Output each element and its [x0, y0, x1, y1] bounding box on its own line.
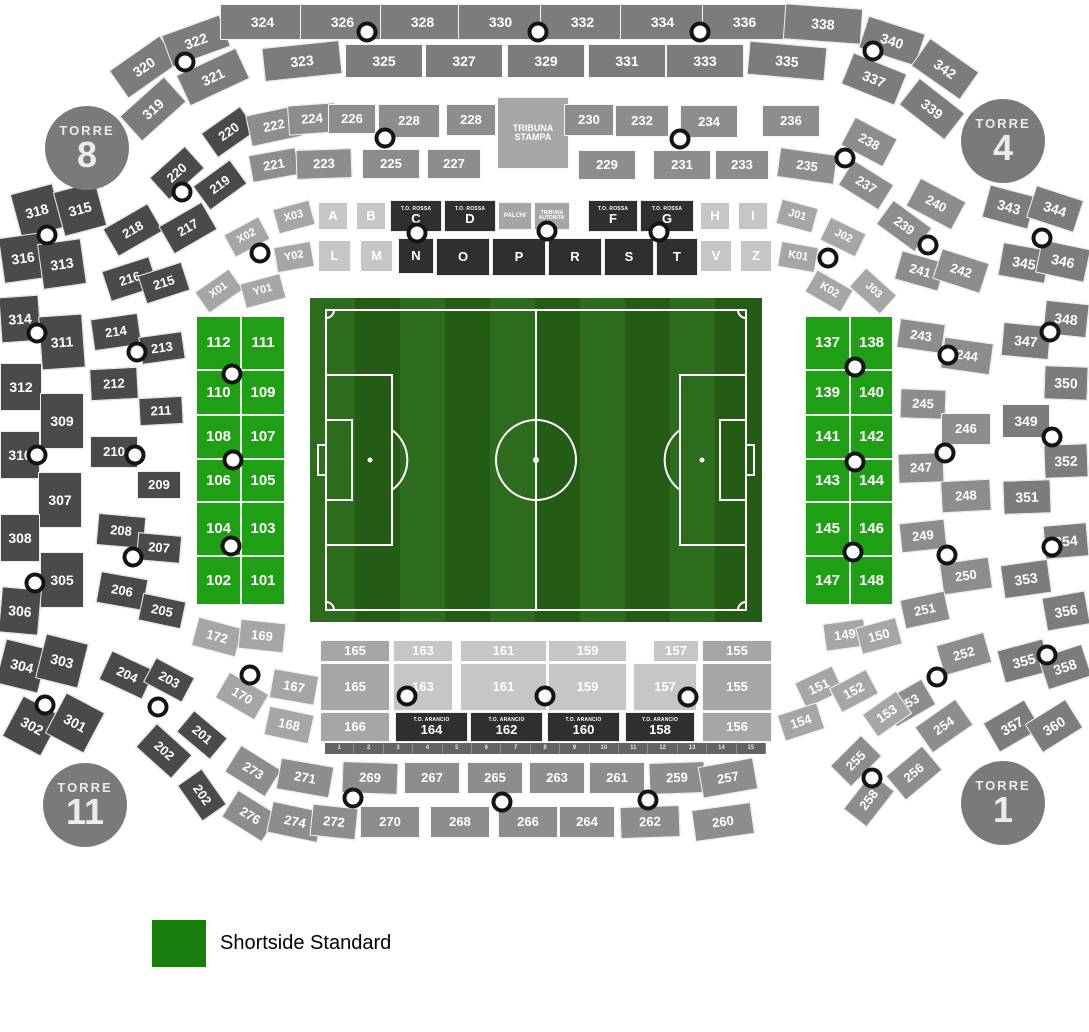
- section-335: 335: [747, 41, 828, 82]
- gate-marker: [845, 452, 866, 473]
- gate-marker: [845, 357, 866, 378]
- section-260: 260: [691, 802, 755, 842]
- section-label: 264: [575, 815, 599, 829]
- section-325: 325: [345, 44, 423, 78]
- row-number: 7: [501, 743, 530, 754]
- section-label: 259: [665, 771, 689, 785]
- section-label: 313: [48, 255, 75, 273]
- section-label: 159: [576, 644, 600, 658]
- section-143[interactable]: 143: [805, 459, 850, 502]
- section-165: 165: [320, 640, 390, 662]
- section-label: 209: [147, 478, 171, 492]
- row-number: 13: [678, 743, 707, 754]
- section-248: 248: [940, 479, 992, 514]
- section-154: 154: [777, 702, 826, 742]
- gate-marker: [927, 667, 948, 688]
- section-label: 144: [858, 473, 885, 489]
- section-102[interactable]: 102: [196, 556, 241, 605]
- section-label: 250: [953, 568, 978, 585]
- section-label: 227: [442, 157, 466, 171]
- section-328: 328: [380, 4, 465, 40]
- section-label: 155: [725, 680, 749, 694]
- section-label: TRIBUNA STAMPA: [498, 124, 568, 143]
- section-273: 273: [224, 745, 282, 798]
- section-b: B: [356, 202, 386, 230]
- section-label: 104: [205, 521, 232, 537]
- section-label: 219: [206, 173, 233, 198]
- section-label: 203: [155, 668, 182, 691]
- section-272: 272: [309, 804, 358, 841]
- section-351: 351: [1002, 479, 1051, 515]
- section-323: 323: [261, 40, 342, 82]
- section-211: 211: [138, 396, 183, 426]
- section-label: 342: [930, 56, 959, 83]
- section-label: L: [330, 249, 340, 263]
- section-159: 159: [548, 640, 627, 662]
- section-label: 343: [995, 197, 1023, 218]
- section-label: 145: [814, 521, 841, 537]
- section-label: H: [709, 209, 720, 223]
- section-233: 233: [715, 150, 769, 180]
- gate-marker: [670, 129, 691, 150]
- section-label: J01: [786, 208, 809, 224]
- gate-marker: [863, 41, 884, 62]
- section-label: 152: [840, 679, 867, 702]
- section-label: J03: [862, 280, 885, 302]
- section-label: 221: [261, 156, 287, 174]
- section-label: R: [569, 250, 580, 264]
- section-label: 156: [725, 720, 749, 734]
- gate-marker: [375, 128, 396, 149]
- section-label: 333: [692, 54, 717, 69]
- section-label: 150: [866, 626, 892, 645]
- section-label: 225: [379, 157, 403, 171]
- section-a: A: [318, 202, 348, 230]
- section-label: 276: [236, 804, 263, 828]
- section-160: T.O. ARANCIO160: [547, 712, 620, 742]
- section-label: 271: [292, 769, 318, 787]
- section-label: 148: [858, 573, 885, 589]
- section-226: 226: [328, 104, 376, 134]
- section-label: 226: [340, 112, 364, 126]
- section-label: 208: [109, 523, 134, 539]
- section-label: 158: [648, 723, 672, 737]
- section-label: 160: [572, 723, 596, 737]
- section-246: 246: [941, 413, 991, 445]
- section-label: 220: [215, 120, 242, 145]
- section-z: Z: [740, 240, 772, 272]
- section-label: X01: [207, 280, 231, 302]
- section-label: 167: [281, 678, 307, 696]
- section-label: 331: [614, 54, 639, 69]
- section-label: P: [514, 250, 525, 264]
- section-label: 109: [249, 385, 276, 401]
- section-308: 308: [0, 514, 40, 562]
- row-number: 3: [384, 743, 413, 754]
- section-label: 218: [119, 218, 146, 242]
- section-j01: J01: [775, 199, 818, 234]
- section-332: 332: [540, 4, 625, 40]
- section-label: T: [672, 250, 682, 264]
- torre-4: TORRE4: [961, 99, 1045, 183]
- section-264: 264: [559, 806, 615, 838]
- section-label: 247: [909, 461, 933, 475]
- section-x03: X03: [272, 200, 315, 235]
- row-number: 4: [413, 743, 442, 754]
- section-label: 338: [810, 16, 836, 32]
- gate-marker: [25, 573, 46, 594]
- section-label: 224: [300, 111, 325, 126]
- section-163: 163: [393, 640, 453, 662]
- section-165: 165: [320, 663, 390, 711]
- gate-marker: [638, 790, 659, 811]
- section-label: 334: [650, 15, 675, 30]
- section-107[interactable]: 107: [241, 415, 285, 459]
- torre-1: TORRE1: [961, 761, 1045, 845]
- section-309: 309: [40, 393, 84, 449]
- section-label: 143: [814, 473, 841, 489]
- section-k02: K02: [804, 269, 853, 313]
- section-label: Z: [751, 249, 761, 263]
- section-label: 245: [911, 397, 935, 411]
- section-label: A: [327, 209, 338, 223]
- section-label: 356: [1052, 602, 1080, 621]
- section-label: 328: [410, 15, 435, 30]
- section-261: 261: [589, 762, 645, 794]
- section-263: 263: [529, 762, 585, 794]
- section-r: R: [548, 238, 602, 276]
- section-360: 360: [1025, 699, 1084, 753]
- section-268: 268: [430, 806, 490, 838]
- section-label: 316: [9, 249, 36, 267]
- section-label: 260: [710, 814, 735, 831]
- section-h: H: [700, 202, 730, 230]
- section-label: 215: [151, 273, 178, 293]
- section-p: P: [492, 238, 546, 276]
- row-number: 15: [737, 743, 766, 754]
- section-157: 157: [653, 640, 699, 662]
- section-label: 302: [17, 714, 46, 739]
- section-label: 146: [858, 521, 885, 537]
- section-label: I: [750, 209, 756, 223]
- section-164: T.O. ARANCIO164: [395, 712, 468, 742]
- section-229: 229: [578, 150, 636, 180]
- section-label: 269: [358, 771, 382, 785]
- section-331: 331: [588, 44, 666, 78]
- section-label: X03: [282, 209, 306, 226]
- section-205: 205: [138, 593, 187, 630]
- section-label: 240: [922, 192, 949, 215]
- section-159: 159: [548, 663, 627, 711]
- section-label: 205: [149, 602, 175, 620]
- section-label: 267: [420, 771, 444, 785]
- section-label: 139: [814, 385, 841, 401]
- gate-marker: [862, 768, 883, 789]
- gate-marker: [397, 686, 418, 707]
- section-230: 230: [564, 104, 614, 136]
- section-label: 346: [1049, 251, 1077, 271]
- gate-marker: [223, 450, 244, 471]
- section-label: 107: [249, 429, 276, 445]
- section-label: 337: [859, 67, 888, 90]
- section-329: 329: [507, 44, 585, 78]
- gate-marker: [678, 687, 699, 708]
- section-label: 324: [250, 15, 275, 30]
- torre-number: 8: [77, 138, 97, 172]
- section-105[interactable]: 105: [241, 459, 285, 502]
- gate-marker: [27, 323, 48, 344]
- section-label: 157: [653, 680, 677, 694]
- stadium-map: 123456789101112131415 Shortside Standard…: [0, 0, 1089, 1032]
- section-label: 344: [1041, 198, 1070, 220]
- section-label: 165: [343, 644, 367, 658]
- section-label: 228: [397, 114, 421, 128]
- section-352: 352: [1043, 443, 1088, 479]
- section-label: 214: [103, 324, 128, 341]
- section-225: 225: [362, 149, 420, 179]
- section-label: 266: [516, 815, 540, 829]
- section-label: 102: [205, 573, 232, 589]
- section-label: 155: [725, 644, 749, 658]
- section-101[interactable]: 101: [241, 556, 285, 605]
- legend: Shortside Standard: [152, 920, 391, 967]
- section-236: 236: [762, 105, 820, 137]
- gate-marker: [843, 542, 864, 563]
- section-label: 273: [239, 759, 266, 783]
- section-label: 108: [205, 429, 232, 445]
- section-label: 335: [774, 53, 801, 70]
- section-353: 353: [1000, 559, 1052, 599]
- section-label: 210: [102, 445, 126, 459]
- section-label: 151: [805, 676, 832, 698]
- section-202: 202: [177, 768, 227, 821]
- section-label: 303: [48, 651, 76, 671]
- section-155: 155: [702, 663, 772, 711]
- section-v: V: [700, 240, 732, 272]
- section-label: 270: [378, 815, 402, 829]
- section-label: 263: [545, 771, 569, 785]
- section-167: 167: [269, 668, 320, 706]
- torre-number: 4: [993, 131, 1013, 165]
- section-306: 306: [0, 586, 42, 635]
- section-311: 311: [38, 314, 86, 371]
- section-k01: K01: [777, 241, 819, 273]
- section-label: 234: [697, 115, 721, 129]
- section-111[interactable]: 111: [241, 316, 285, 370]
- section-label: 237: [852, 173, 879, 197]
- section-label: 212: [102, 377, 126, 392]
- section-label: 320: [129, 54, 158, 81]
- section-label: 329: [533, 54, 558, 69]
- section-label: F: [608, 212, 618, 226]
- section-156: 156: [702, 712, 772, 742]
- section-label: 206: [109, 582, 135, 600]
- section-169: 169: [238, 619, 287, 654]
- section-label: 351: [1014, 489, 1040, 505]
- section-label: 172: [204, 627, 230, 646]
- section-172: 172: [191, 617, 243, 658]
- section-139[interactable]: 139: [805, 370, 850, 415]
- section-label: 272: [321, 814, 346, 830]
- section-label: 239: [890, 214, 917, 239]
- row-number: 5: [443, 743, 472, 754]
- section-label: 262: [638, 815, 662, 829]
- gate-marker: [818, 248, 839, 269]
- gate-marker: [528, 22, 549, 43]
- gate-marker: [935, 443, 956, 464]
- section-label: 159: [576, 680, 600, 694]
- gate-marker: [250, 243, 271, 264]
- gate-marker: [27, 445, 48, 466]
- section-label: 248: [954, 489, 978, 504]
- section-label: 257: [715, 769, 741, 787]
- section-label: 268: [448, 815, 472, 829]
- gate-marker: [172, 182, 193, 203]
- gate-marker: [222, 364, 243, 385]
- section-label: N: [410, 249, 421, 263]
- section-label: Y02: [282, 249, 305, 264]
- section-label: 309: [49, 414, 74, 429]
- section-palchi: PALCHI: [498, 202, 532, 230]
- section-141[interactable]: 141: [805, 415, 850, 459]
- section-227: 227: [427, 149, 481, 179]
- section-242: 242: [932, 248, 989, 294]
- torre-number: 11: [66, 795, 104, 829]
- section-label: 161: [492, 680, 516, 694]
- section-label: 111: [250, 335, 275, 351]
- section-232: 232: [615, 105, 669, 137]
- gate-marker: [537, 221, 558, 242]
- section-147[interactable]: 147: [805, 556, 850, 605]
- section-label: 166: [343, 720, 367, 734]
- section-324: 324: [220, 4, 305, 40]
- section-212: 212: [89, 367, 139, 401]
- section-label: 336: [732, 15, 757, 30]
- row-number: 9: [560, 743, 589, 754]
- section-203: 203: [143, 657, 195, 702]
- section-label: 304: [8, 656, 36, 676]
- section-label: 170: [228, 684, 255, 708]
- section-333: 333: [666, 44, 744, 78]
- gate-marker: [1037, 645, 1058, 666]
- section-209: 209: [137, 471, 181, 499]
- section-label: 207: [147, 540, 172, 556]
- pitch-graphic: [310, 298, 762, 622]
- section-109[interactable]: 109: [241, 370, 285, 415]
- gate-marker: [343, 788, 364, 809]
- section-label: 357: [997, 713, 1026, 738]
- torre-8: TORRE8: [45, 106, 129, 190]
- section-label: TRIBUNA AUTORITA': [535, 211, 569, 222]
- section-label: 306: [7, 603, 34, 620]
- section-m: M: [360, 240, 393, 272]
- section-label: 311: [49, 334, 75, 350]
- row-number: 10: [590, 743, 619, 754]
- section-251: 251: [899, 591, 950, 630]
- section-label: 169: [249, 628, 274, 644]
- section-label: 350: [1053, 375, 1079, 391]
- gate-marker: [148, 697, 169, 718]
- section-168: 168: [263, 706, 314, 745]
- legend-swatch-shortside-standard: [152, 920, 206, 967]
- section-label: 301: [60, 711, 89, 736]
- section-label: 332: [570, 15, 595, 30]
- torre-number: 1: [993, 793, 1013, 827]
- section-label: 138: [858, 335, 885, 351]
- section-label: 243: [908, 328, 933, 345]
- section-245: 245: [899, 388, 946, 420]
- row-number: 11: [619, 743, 648, 754]
- gate-marker: [1042, 537, 1063, 558]
- section-label: 230: [577, 113, 601, 127]
- section-label: 213: [149, 340, 174, 357]
- gate-marker: [1040, 322, 1061, 343]
- section-label: 137: [814, 335, 841, 351]
- section-label: J02: [831, 227, 854, 246]
- section-label: 251: [912, 601, 938, 619]
- section-label: 321: [198, 65, 227, 89]
- section-label: 326: [330, 15, 355, 30]
- section-label: 202: [151, 738, 178, 764]
- row-number: 14: [707, 743, 736, 754]
- gate-marker: [918, 235, 939, 256]
- section-label: 308: [7, 531, 32, 546]
- section-label: O: [457, 250, 469, 264]
- section-label: 110: [205, 385, 231, 401]
- section-label: 231: [670, 158, 694, 172]
- section-label: 153: [873, 702, 900, 727]
- gate-marker: [127, 342, 148, 363]
- section-303: 303: [35, 633, 89, 688]
- section-112[interactable]: 112: [196, 316, 241, 370]
- section-label: V: [711, 249, 722, 263]
- row-number: 8: [531, 743, 560, 754]
- section-label: 315: [66, 199, 94, 220]
- gate-marker: [1042, 427, 1063, 448]
- section-label: 330: [488, 15, 513, 30]
- section-i: I: [738, 202, 768, 230]
- section-label: 352: [1053, 453, 1079, 469]
- section-label: 161: [492, 644, 516, 658]
- section-label: 238: [855, 130, 882, 153]
- section-label: 222: [261, 117, 287, 135]
- gate-marker: [240, 665, 261, 686]
- section-103[interactable]: 103: [241, 502, 285, 556]
- gate-marker: [221, 536, 242, 557]
- gate-marker: [175, 52, 196, 73]
- section-y01: Y01: [239, 273, 286, 309]
- section-label: 274: [282, 813, 308, 831]
- section-j03: J03: [849, 267, 898, 314]
- section-label: K01: [786, 249, 810, 264]
- section-label: 163: [411, 644, 435, 658]
- section-label: 103: [249, 521, 276, 537]
- section-313: 313: [37, 238, 87, 290]
- section-267: 267: [404, 762, 460, 794]
- section-137[interactable]: 137: [805, 316, 850, 370]
- section-label: 140: [858, 385, 885, 401]
- section-label: 261: [605, 771, 629, 785]
- section-305: 305: [40, 552, 84, 608]
- section-label: PALCHI: [503, 213, 527, 219]
- section-148[interactable]: 148: [850, 556, 893, 605]
- section-label: D: [464, 212, 475, 226]
- section-161: 161: [460, 663, 547, 711]
- section-label: 252: [951, 644, 978, 664]
- section-label: 325: [371, 54, 396, 69]
- section-270: 270: [360, 806, 420, 838]
- section-label: 235: [794, 158, 819, 175]
